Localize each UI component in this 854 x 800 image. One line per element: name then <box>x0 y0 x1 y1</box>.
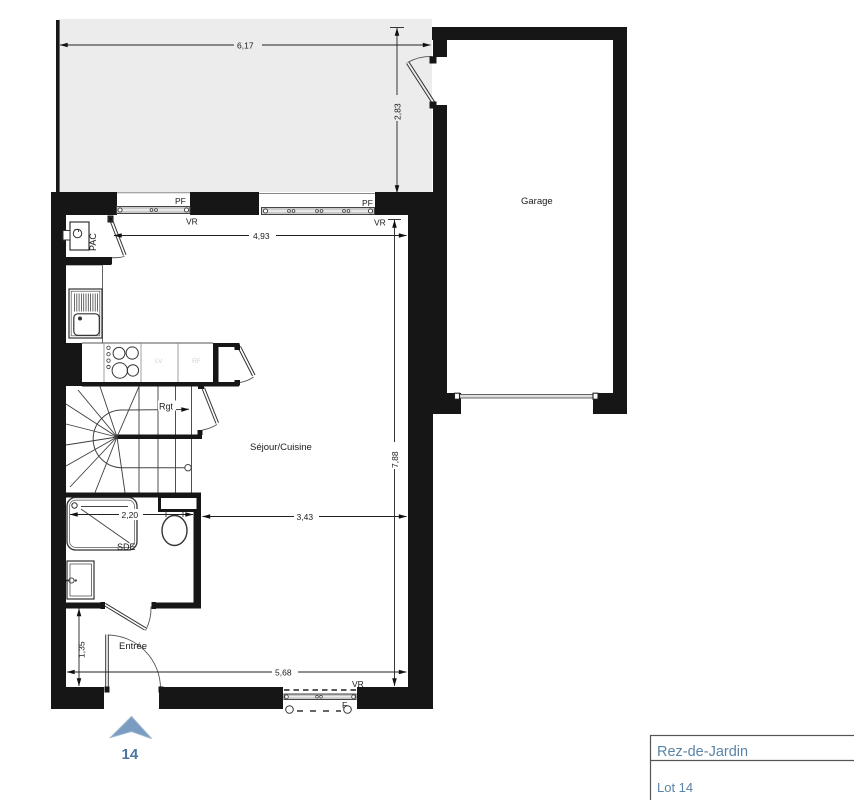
svg-text:3,43: 3,43 <box>297 512 314 522</box>
svg-text:5,68: 5,68 <box>275 668 292 678</box>
svg-text:SDE: SDE <box>117 542 136 552</box>
svg-text:RF: RF <box>192 358 201 365</box>
svg-text:4,93: 4,93 <box>253 231 270 241</box>
svg-text:VR: VR <box>186 217 198 227</box>
svg-text:2,83: 2,83 <box>393 103 403 120</box>
svg-text:F: F <box>342 700 347 710</box>
svg-text:PF: PF <box>362 198 373 208</box>
svg-text:Séjour/Cuisine: Séjour/Cuisine <box>250 442 312 453</box>
svg-text:PF: PF <box>175 196 186 206</box>
svg-text:7,88: 7,88 <box>390 451 400 468</box>
svg-text:Entrée: Entrée <box>119 641 147 652</box>
svg-text:Rgt: Rgt <box>159 402 174 412</box>
svg-text:Garage: Garage <box>521 196 553 207</box>
svg-text:LV: LV <box>155 358 163 365</box>
svg-text:Rez-de-Jardin: Rez-de-Jardin <box>657 744 748 760</box>
svg-text:2,20: 2,20 <box>122 510 139 520</box>
svg-text:1,35: 1,35 <box>77 641 87 658</box>
svg-text:6,17: 6,17 <box>237 41 254 51</box>
svg-text:VR: VR <box>374 218 386 228</box>
svg-text:Lot 14: Lot 14 <box>657 780 693 795</box>
svg-text:14: 14 <box>122 746 139 763</box>
svg-text:VR: VR <box>352 679 364 689</box>
svg-text:PAC: PAC <box>88 233 98 251</box>
